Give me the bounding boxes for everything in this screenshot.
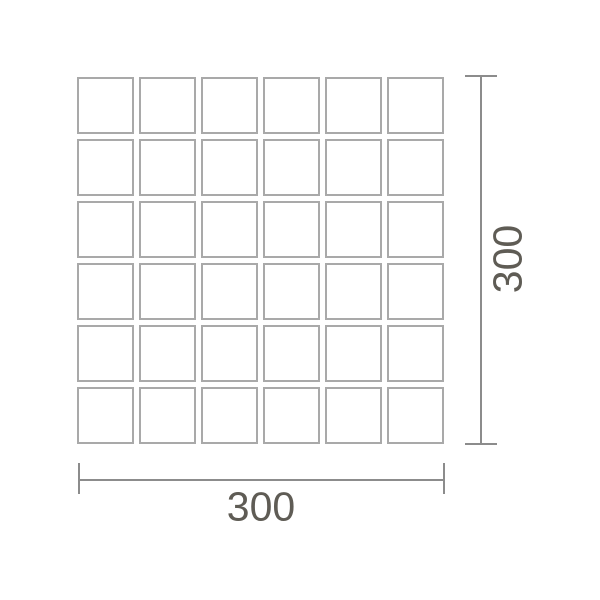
width-dimension-left-tick [78,463,80,494]
tile-cell [77,139,134,196]
tile-cell [325,263,382,320]
mosaic-grid [77,77,444,444]
tile-dimension-diagram: 300 300 [0,0,600,600]
tile-cell [325,139,382,196]
tile-cell [201,325,258,382]
tile-cell [139,325,196,382]
tile-cell [201,263,258,320]
tile-cell [263,263,320,320]
height-dimension-label: 300 [488,225,529,293]
tile-cell [201,139,258,196]
width-dimension-right-tick [443,463,445,494]
tile-cell [387,263,444,320]
tile-cell [77,201,134,258]
tile-cell [201,77,258,134]
width-dimension-line [78,479,444,481]
tile-cell [201,387,258,444]
tile-cell [77,387,134,444]
height-dimension-bottom-tick [465,443,497,445]
tile-cell [139,77,196,134]
tile-cell [139,387,196,444]
tile-cell [325,77,382,134]
tile-cell [263,325,320,382]
tile-cell [387,387,444,444]
height-dimension-line [480,75,482,444]
tile-cell [201,201,258,258]
tile-cell [263,139,320,196]
tile-cell [387,139,444,196]
tile-cell [139,139,196,196]
tile-cell [263,387,320,444]
tile-cell [263,201,320,258]
width-dimension-label: 300 [227,487,295,528]
tile-cell [77,263,134,320]
tile-cell [325,325,382,382]
tile-cell [325,201,382,258]
tile-cell [77,325,134,382]
tile-cell [387,201,444,258]
tile-cell [139,263,196,320]
tile-cell [387,77,444,134]
tile-cell [387,325,444,382]
tile-cell [139,201,196,258]
height-dimension-top-tick [465,75,497,77]
tile-cell [77,77,134,134]
tile-cell [263,77,320,134]
tile-cell [325,387,382,444]
